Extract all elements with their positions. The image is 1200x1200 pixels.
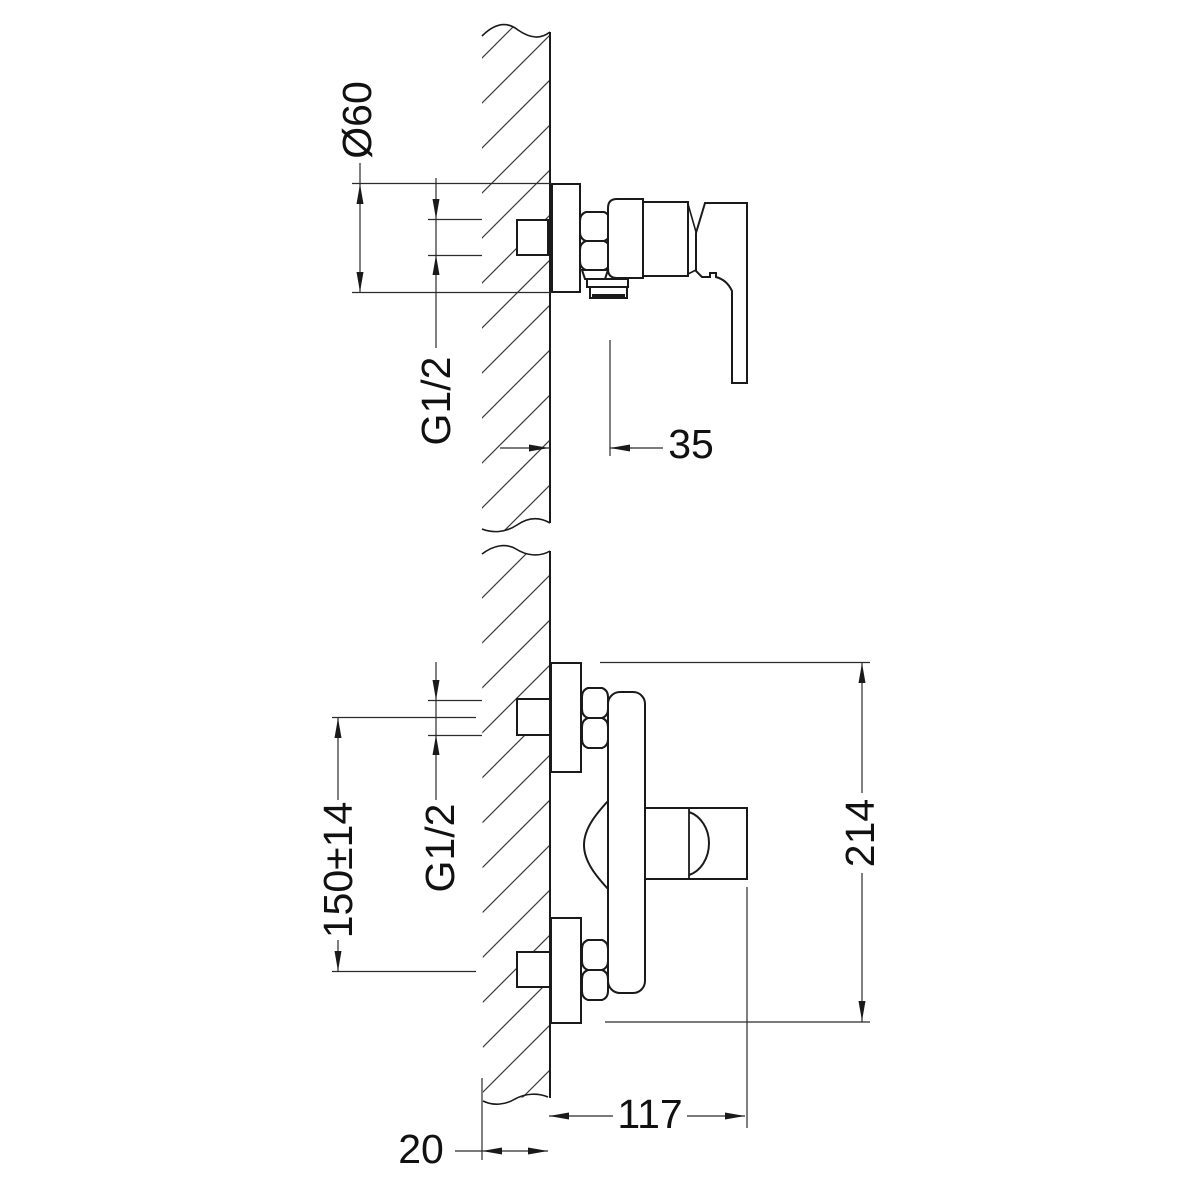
lever-handle [696, 203, 747, 383]
mixer-body-barrel [643, 202, 688, 276]
dim-arrow [610, 445, 630, 452]
body-dome-profile [584, 801, 608, 889]
dim-arrow [357, 272, 364, 292]
lever-handle [645, 808, 747, 879]
dim-label-thread-top: G1/2 [413, 357, 459, 446]
escutcheon [551, 663, 581, 772]
dim-arrow [482, 1148, 502, 1155]
hex-nut-facet [580, 212, 610, 241]
hex-nut-facet [582, 718, 608, 748]
escutcheon [552, 184, 580, 292]
dimension-lines [332, 163, 870, 1160]
dim-arrow [725, 1113, 745, 1120]
dim-arrow [433, 255, 440, 275]
wall-pipe-boss [517, 699, 550, 735]
technical-drawing: Ø60 G1/2 35 150±14 G1/2 214 117 20 [0, 0, 1200, 1200]
front-view-fixture [517, 663, 747, 1023]
wall-pipe-boss [517, 220, 548, 255]
dim-label-inlet-spacing: 150±14 [315, 802, 361, 939]
body-neck-line [688, 204, 696, 232]
dim-label-outlet-offset: 35 [668, 421, 714, 467]
outlet-bracket [582, 270, 608, 279]
drawing-canvas: Ø60 G1/2 35 150±14 G1/2 214 117 20 [0, 0, 1200, 1200]
outlet-flange [587, 279, 628, 287]
dim-arrow [433, 735, 440, 755]
dim-arrow [549, 1113, 569, 1120]
hex-nut-facet [582, 970, 608, 1000]
hex-nut-facet [582, 688, 608, 718]
dim-arrow [859, 1001, 866, 1021]
dim-arrow [859, 663, 866, 683]
dimension-arrows [335, 184, 866, 1155]
mixer-cartridge-housing [608, 199, 643, 278]
hex-nut-facet [580, 241, 610, 270]
dim-arrow [335, 718, 342, 738]
dim-arrow [528, 1148, 548, 1155]
dim-arrow [357, 184, 364, 204]
dim-arrow [433, 680, 440, 700]
mixer-body [608, 692, 645, 993]
wall-hatch [482, 546, 550, 1105]
dim-label-wall-depth: 20 [398, 1126, 444, 1172]
dim-label-projection: 117 [617, 1091, 682, 1137]
wall-upper-section [482, 25, 550, 532]
dim-label-overall-height: 214 [837, 799, 883, 867]
wall-lower-section [482, 546, 550, 1105]
body-neck-line [688, 270, 696, 274]
dim-arrow [433, 199, 440, 219]
side-view-fixture [517, 184, 747, 383]
escutcheon [551, 918, 581, 1023]
dim-arrow [335, 951, 342, 971]
dim-label-escutcheon-diameter: Ø60 [334, 81, 380, 159]
wall-hatch [482, 25, 550, 532]
hex-nut-facet [582, 940, 608, 970]
wall-pipe-boss [517, 952, 550, 987]
dim-label-thread-bottom: G1/2 [417, 804, 463, 893]
